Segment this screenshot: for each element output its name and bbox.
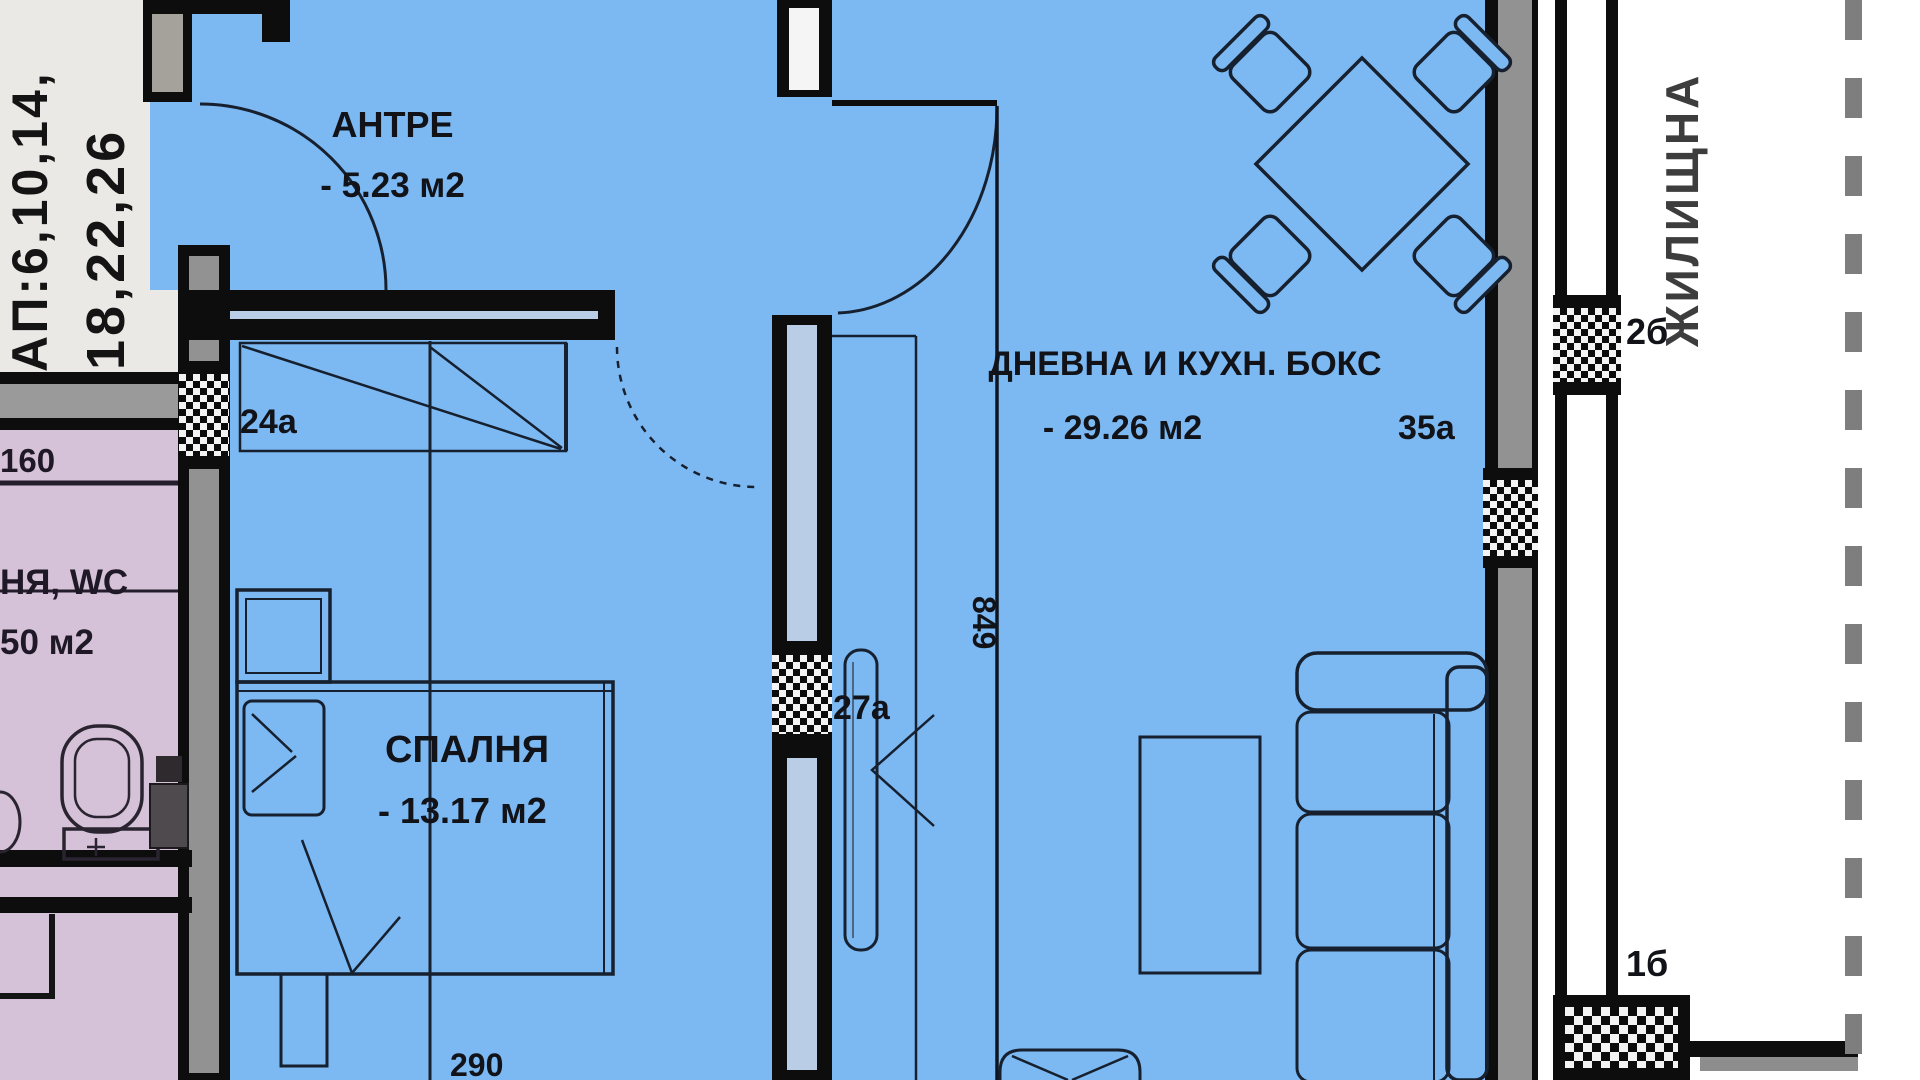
dim-290: 290 [450, 1049, 503, 1080]
toilet [0, 726, 188, 859]
neighbor-room-name: НЯ, WC [0, 565, 128, 602]
sofa [1297, 653, 1487, 1080]
antre-room-area: - 5.23 м2 [280, 168, 505, 205]
sink-partial [0, 792, 20, 852]
margin-apartments-line1: АП:6,10,14, [4, 70, 57, 372]
living-door-arc [838, 106, 997, 313]
kitchen-island [1140, 737, 1260, 973]
living-room-name: ДНЕВНА И КУХН. БОКС [925, 347, 1445, 383]
armchair [1000, 1050, 1140, 1080]
right-zone-label: ЖИЛИЩНА [1658, 73, 1706, 347]
dim-849: 849 [966, 596, 1000, 649]
margin-apartments-line2: 18,22,26 [78, 128, 135, 370]
living-room-area: - 29.26 м2 [1020, 411, 1225, 447]
antre-room-name: АНТРЕ [280, 106, 505, 144]
bedroom-door-arc [617, 347, 757, 487]
plan-linework [0, 0, 1920, 1080]
floor-plan: АП:6,10,14, 18,22,26 АНТРЕ - 5.23 м2 СПА… [0, 0, 1920, 1080]
bedroom-room-area: - 13.17 м2 [378, 792, 547, 830]
bed-bench [281, 974, 327, 1066]
label-1b: 1б [1626, 945, 1668, 983]
neighbor-room-area: 50 м2 [0, 625, 94, 662]
neighbor-dim-160: 160 [0, 444, 55, 479]
label-27a: 27а [833, 691, 890, 727]
label-24a: 24а [240, 405, 297, 441]
bedroom-room-name: СПАЛНЯ [385, 731, 549, 771]
label-35a: 35а [1398, 411, 1455, 447]
duct [150, 784, 188, 848]
